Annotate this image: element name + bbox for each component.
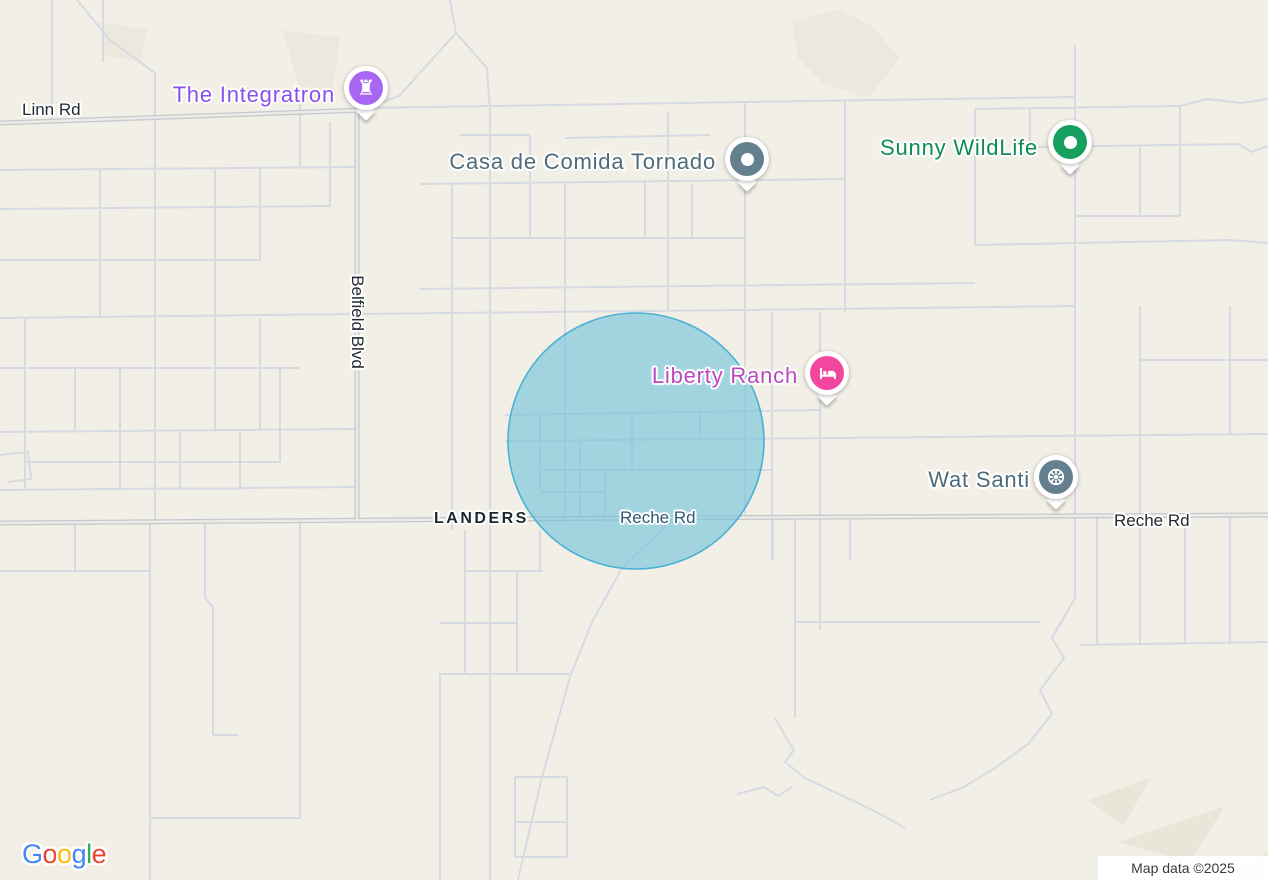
- bed-icon: [810, 356, 844, 390]
- google-logo[interactable]: Google: [22, 839, 106, 870]
- pin-sunny-wildlife[interactable]: [1048, 120, 1092, 178]
- pin-liberty-ranch[interactable]: [805, 351, 849, 409]
- road-label-reche-rd-center: Reche Rd: [620, 508, 696, 528]
- dharma-wheel-icon: [1039, 460, 1073, 494]
- logo-letter: o: [43, 839, 58, 870]
- pin-wat-santi[interactable]: [1034, 455, 1078, 513]
- logo-letter: e: [92, 839, 107, 870]
- map-canvas[interactable]: Linn Rd Belfield Blvd LANDERS Reche Rd R…: [0, 0, 1268, 880]
- pin-the-integratron[interactable]: ♜: [344, 66, 388, 124]
- poi-label-sunny-wildlife[interactable]: Sunny WildLife: [880, 135, 1038, 161]
- poi-label-wat-santi[interactable]: Wat Santi: [928, 467, 1030, 493]
- logo-letter: G: [22, 839, 43, 870]
- dot-icon: [730, 142, 764, 176]
- logo-letter: g: [72, 839, 87, 870]
- poi-label-casa-de-comida-tornado[interactable]: Casa de Comida Tornado: [449, 149, 716, 175]
- road-label-belfield-blvd: Belfield Blvd: [347, 252, 367, 392]
- road-label-reche-rd-east: Reche Rd: [1114, 511, 1190, 531]
- road-label-linn-rd: Linn Rd: [22, 100, 81, 120]
- poi-label-liberty-ranch[interactable]: Liberty Ranch: [652, 363, 798, 389]
- map-attribution: Map data ©2025: [1098, 856, 1268, 880]
- pin-casa-de-comida-tornado[interactable]: [725, 137, 769, 195]
- logo-letter: o: [57, 839, 72, 870]
- poi-label-the-integratron[interactable]: The Integratron: [173, 82, 335, 108]
- castle-tower-icon: ♜: [349, 71, 383, 105]
- locality-label-landers: LANDERS: [434, 510, 529, 528]
- dot-icon: [1053, 125, 1087, 159]
- search-radius-circle: [508, 313, 764, 569]
